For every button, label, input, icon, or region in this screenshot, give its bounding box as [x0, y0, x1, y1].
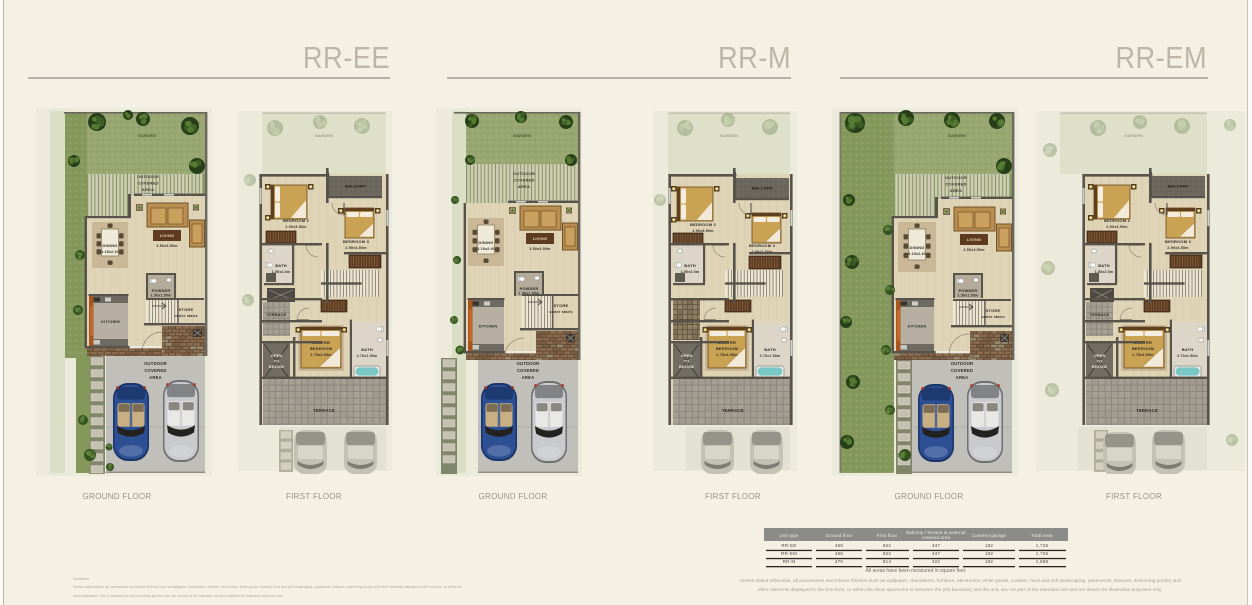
svg-text:POWDER: POWDER: [152, 288, 171, 293]
svg-text:192: 192: [985, 559, 994, 564]
svg-text:1,698: 1,698: [1036, 559, 1049, 564]
svg-text:LIVING: LIVING: [967, 237, 982, 242]
svg-text:BEDROOM: BEDROOM: [310, 346, 333, 351]
svg-text:470: 470: [835, 559, 844, 564]
svg-text:2.70x1.50m: 2.70x1.50m: [357, 354, 378, 358]
svg-text:465: 465: [835, 543, 844, 548]
svg-text:OPEN: OPEN: [271, 354, 283, 358]
svg-text:TERRACE: TERRACE: [722, 408, 744, 413]
svg-text:LIVING: LIVING: [160, 233, 175, 238]
svg-text:covered area: covered area: [922, 535, 950, 540]
svg-text:AREA: AREA: [522, 375, 535, 380]
svg-text:447: 447: [932, 551, 941, 556]
svg-text:COVERED: COVERED: [513, 178, 534, 183]
svg-text:AREA: AREA: [950, 188, 962, 193]
svg-text:COVERED: COVERED: [951, 368, 973, 373]
svg-text:AREA: AREA: [142, 187, 154, 192]
svg-text:COVERED: COVERED: [517, 368, 539, 373]
svg-text:2.70x1.50m: 2.70x1.50m: [1177, 354, 1198, 358]
svg-text:BEDROOM 3: BEDROOM 3: [343, 239, 370, 244]
svg-text:LIVING: LIVING: [533, 236, 548, 241]
svg-text:KITCHEN: KITCHEN: [908, 324, 927, 329]
svg-text:OUTDOOR: OUTDOOR: [517, 361, 540, 366]
svg-text:Unit type: Unit type: [779, 533, 798, 538]
svg-text:TO: TO: [274, 360, 280, 364]
svg-text:3.50x3.50m: 3.50x3.50m: [963, 248, 984, 252]
svg-text:BALCONY: BALCONY: [1168, 184, 1189, 189]
svg-text:622: 622: [883, 551, 892, 556]
svg-text:BATH: BATH: [275, 263, 287, 268]
svg-text:3.50x3.50m: 3.50x3.50m: [529, 247, 550, 251]
svg-text:BELOW: BELOW: [679, 365, 694, 369]
svg-text:1,726: 1,726: [1036, 543, 1049, 548]
svg-text:Balcony / terrace & external: Balcony / terrace & external: [906, 530, 966, 535]
svg-text:GARDEN: GARDEN: [138, 133, 157, 138]
svg-text:COVERED: COVERED: [945, 182, 966, 187]
svg-text:2.70x1.50m: 2.70x1.50m: [760, 354, 781, 358]
svg-text:BATH: BATH: [684, 263, 696, 268]
svg-text:OUTDOOR: OUTDOOR: [945, 175, 967, 180]
svg-text:Covered garage: Covered garage: [972, 533, 1007, 538]
svg-text:2.75x3.95m: 2.75x3.95m: [716, 353, 737, 357]
svg-text:STORE: STORE: [986, 308, 1001, 313]
svg-text:3.15x2.40: 3.15x2.40: [477, 247, 495, 251]
svg-text:TERRACE: TERRACE: [313, 408, 335, 413]
svg-text:OUTDOOR: OUTDOOR: [951, 361, 974, 366]
svg-text:TERRACE: TERRACE: [267, 313, 287, 317]
svg-text:DINING: DINING: [478, 240, 493, 245]
svg-text:1.50x2.0m: 1.50x2.0m: [272, 270, 291, 274]
svg-text:2.90x3.50m: 2.90x3.50m: [345, 246, 366, 250]
svg-text:OPEN: OPEN: [1094, 354, 1106, 358]
svg-text:COVERED: COVERED: [137, 181, 158, 186]
svg-text:TO: TO: [1097, 360, 1103, 364]
svg-text:KITCHEN: KITCHEN: [479, 324, 498, 329]
svg-text:COVERED: COVERED: [144, 368, 166, 373]
svg-text:AREA: AREA: [956, 375, 969, 380]
svg-text:BEDROOM 2: BEDROOM 2: [283, 218, 310, 223]
svg-text:2.75x3.95m: 2.75x3.95m: [1132, 353, 1153, 357]
svg-text:BELOW: BELOW: [1092, 365, 1107, 369]
svg-text:BATH: BATH: [1098, 263, 1110, 268]
svg-text:BATH: BATH: [361, 347, 373, 352]
svg-text:AREA: AREA: [149, 375, 162, 380]
svg-text:1.50x1.50m: 1.50x1.50m: [151, 294, 172, 298]
svg-text:3.15x2.40: 3.15x2.40: [908, 252, 926, 256]
svg-text:under stairs: under stairs: [549, 310, 573, 314]
svg-text:GARDEN: GARDEN: [513, 133, 532, 138]
svg-text:STORE: STORE: [179, 307, 194, 312]
svg-text:DINING: DINING: [102, 243, 117, 248]
svg-text:447: 447: [932, 543, 941, 548]
svg-text:under stairs: under stairs: [174, 314, 198, 318]
svg-text:BEDROOM 3: BEDROOM 3: [749, 243, 776, 248]
svg-text:TERRACE: TERRACE: [1136, 408, 1158, 413]
svg-text:GARDEN: GARDEN: [1124, 133, 1143, 138]
svg-text:614: 614: [883, 559, 892, 564]
svg-text:BEDROOM 2: BEDROOM 2: [1104, 218, 1131, 223]
svg-text:3.15x2.40: 3.15x2.40: [101, 250, 119, 254]
svg-text:Ground floor: Ground floor: [826, 533, 853, 538]
svg-text:622: 622: [883, 543, 892, 548]
svg-text:2.75x3.95m: 2.75x3.95m: [310, 353, 331, 357]
svg-text:1.50x1.50m: 1.50x1.50m: [958, 294, 979, 298]
svg-text:OPEN: OPEN: [681, 354, 693, 358]
svg-text:BATH: BATH: [764, 347, 776, 352]
svg-text:2.90x3.50m: 2.90x3.50m: [285, 225, 306, 229]
svg-text:192: 192: [985, 543, 994, 548]
svg-text:1.50x2.0m: 1.50x2.0m: [681, 270, 700, 274]
svg-text:1.50x2.0m: 1.50x2.0m: [1095, 270, 1114, 274]
svg-text:192: 192: [985, 551, 994, 556]
svg-text:465: 465: [835, 551, 844, 556]
svg-text:KITCHEN: KITCHEN: [101, 319, 120, 324]
svg-text:under stairs: under stairs: [981, 315, 1005, 319]
svg-text:BEDROOM 3: BEDROOM 3: [1165, 239, 1192, 244]
svg-text:AREA: AREA: [518, 184, 530, 189]
svg-text:2.90x3.50m: 2.90x3.50m: [1167, 246, 1188, 250]
svg-text:BEDROOM 2: BEDROOM 2: [690, 222, 717, 227]
svg-text:BATH: BATH: [1182, 347, 1194, 352]
svg-text:2.90x3.50m: 2.90x3.50m: [1106, 225, 1127, 229]
svg-text:GARDEN: GARDEN: [720, 133, 739, 138]
svg-text:DINING: DINING: [909, 245, 924, 250]
svg-text:POWDER: POWDER: [520, 286, 539, 291]
svg-text:OUTDOOR: OUTDOOR: [513, 171, 535, 176]
svg-text:1,726: 1,726: [1036, 551, 1049, 556]
svg-text:RR-M: RR-M: [783, 559, 796, 564]
svg-text:3.50x3.50m: 3.50x3.50m: [156, 244, 177, 248]
svg-text:BEDROOM: BEDROOM: [716, 346, 739, 351]
svg-text:OUTDOOR: OUTDOOR: [137, 174, 159, 179]
svg-text:RR-EM: RR-EM: [781, 551, 797, 556]
svg-text:RR-EE: RR-EE: [781, 543, 796, 548]
svg-text:BALCONY: BALCONY: [752, 186, 773, 191]
svg-text:BEDROOM: BEDROOM: [1132, 346, 1155, 351]
svg-text:First floor: First floor: [877, 533, 898, 538]
svg-text:TERRACE: TERRACE: [1090, 313, 1110, 317]
svg-text:TO: TO: [684, 360, 690, 364]
svg-text:STORE: STORE: [554, 303, 569, 308]
svg-text:422: 422: [932, 559, 941, 564]
svg-text:BALCONY: BALCONY: [345, 184, 366, 189]
svg-text:BELOW: BELOW: [269, 365, 284, 369]
svg-text:2.90x3.50m: 2.90x3.50m: [692, 229, 713, 233]
svg-text:GARDEN: GARDEN: [315, 133, 334, 138]
svg-text:OUTDOOR: OUTDOOR: [144, 361, 167, 366]
svg-text:POWDER: POWDER: [959, 288, 978, 293]
svg-text:Total area: Total area: [1031, 533, 1053, 538]
svg-text:GARDEN: GARDEN: [948, 133, 967, 138]
